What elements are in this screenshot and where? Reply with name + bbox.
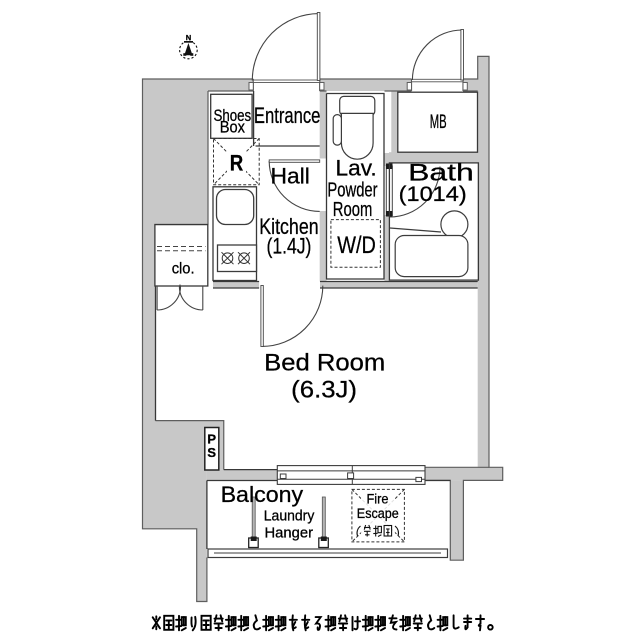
svg-text:Balcony: Balcony <box>221 482 304 507</box>
svg-text:Powder: Powder <box>327 179 377 201</box>
svg-text:clo.: clo. <box>172 261 195 278</box>
svg-text:Hall: Hall <box>271 164 310 189</box>
svg-text:Escape: Escape <box>357 506 399 521</box>
svg-text:W/D: W/D <box>337 232 376 259</box>
svg-text:(6.3J): (6.3J) <box>291 378 357 404</box>
svg-text:S: S <box>207 446 216 460</box>
svg-text:Fire: Fire <box>367 492 389 507</box>
svg-text:Hanger: Hanger <box>265 525 314 541</box>
svg-text:Laundry: Laundry <box>264 508 315 524</box>
svg-text:(1.4J): (1.4J) <box>267 234 312 259</box>
svg-text:N: N <box>186 33 191 42</box>
svg-text:R: R <box>230 150 244 175</box>
svg-text:Bed Room: Bed Room <box>264 351 385 377</box>
svg-text:Lav.: Lav. <box>336 156 377 181</box>
svg-text:MB: MB <box>430 111 447 133</box>
svg-text:Room: Room <box>333 199 373 221</box>
svg-text:Entrance: Entrance <box>254 103 321 128</box>
svg-text:(1014): (1014) <box>399 183 467 206</box>
svg-text:P: P <box>207 433 216 447</box>
svg-text:Box: Box <box>220 119 245 137</box>
